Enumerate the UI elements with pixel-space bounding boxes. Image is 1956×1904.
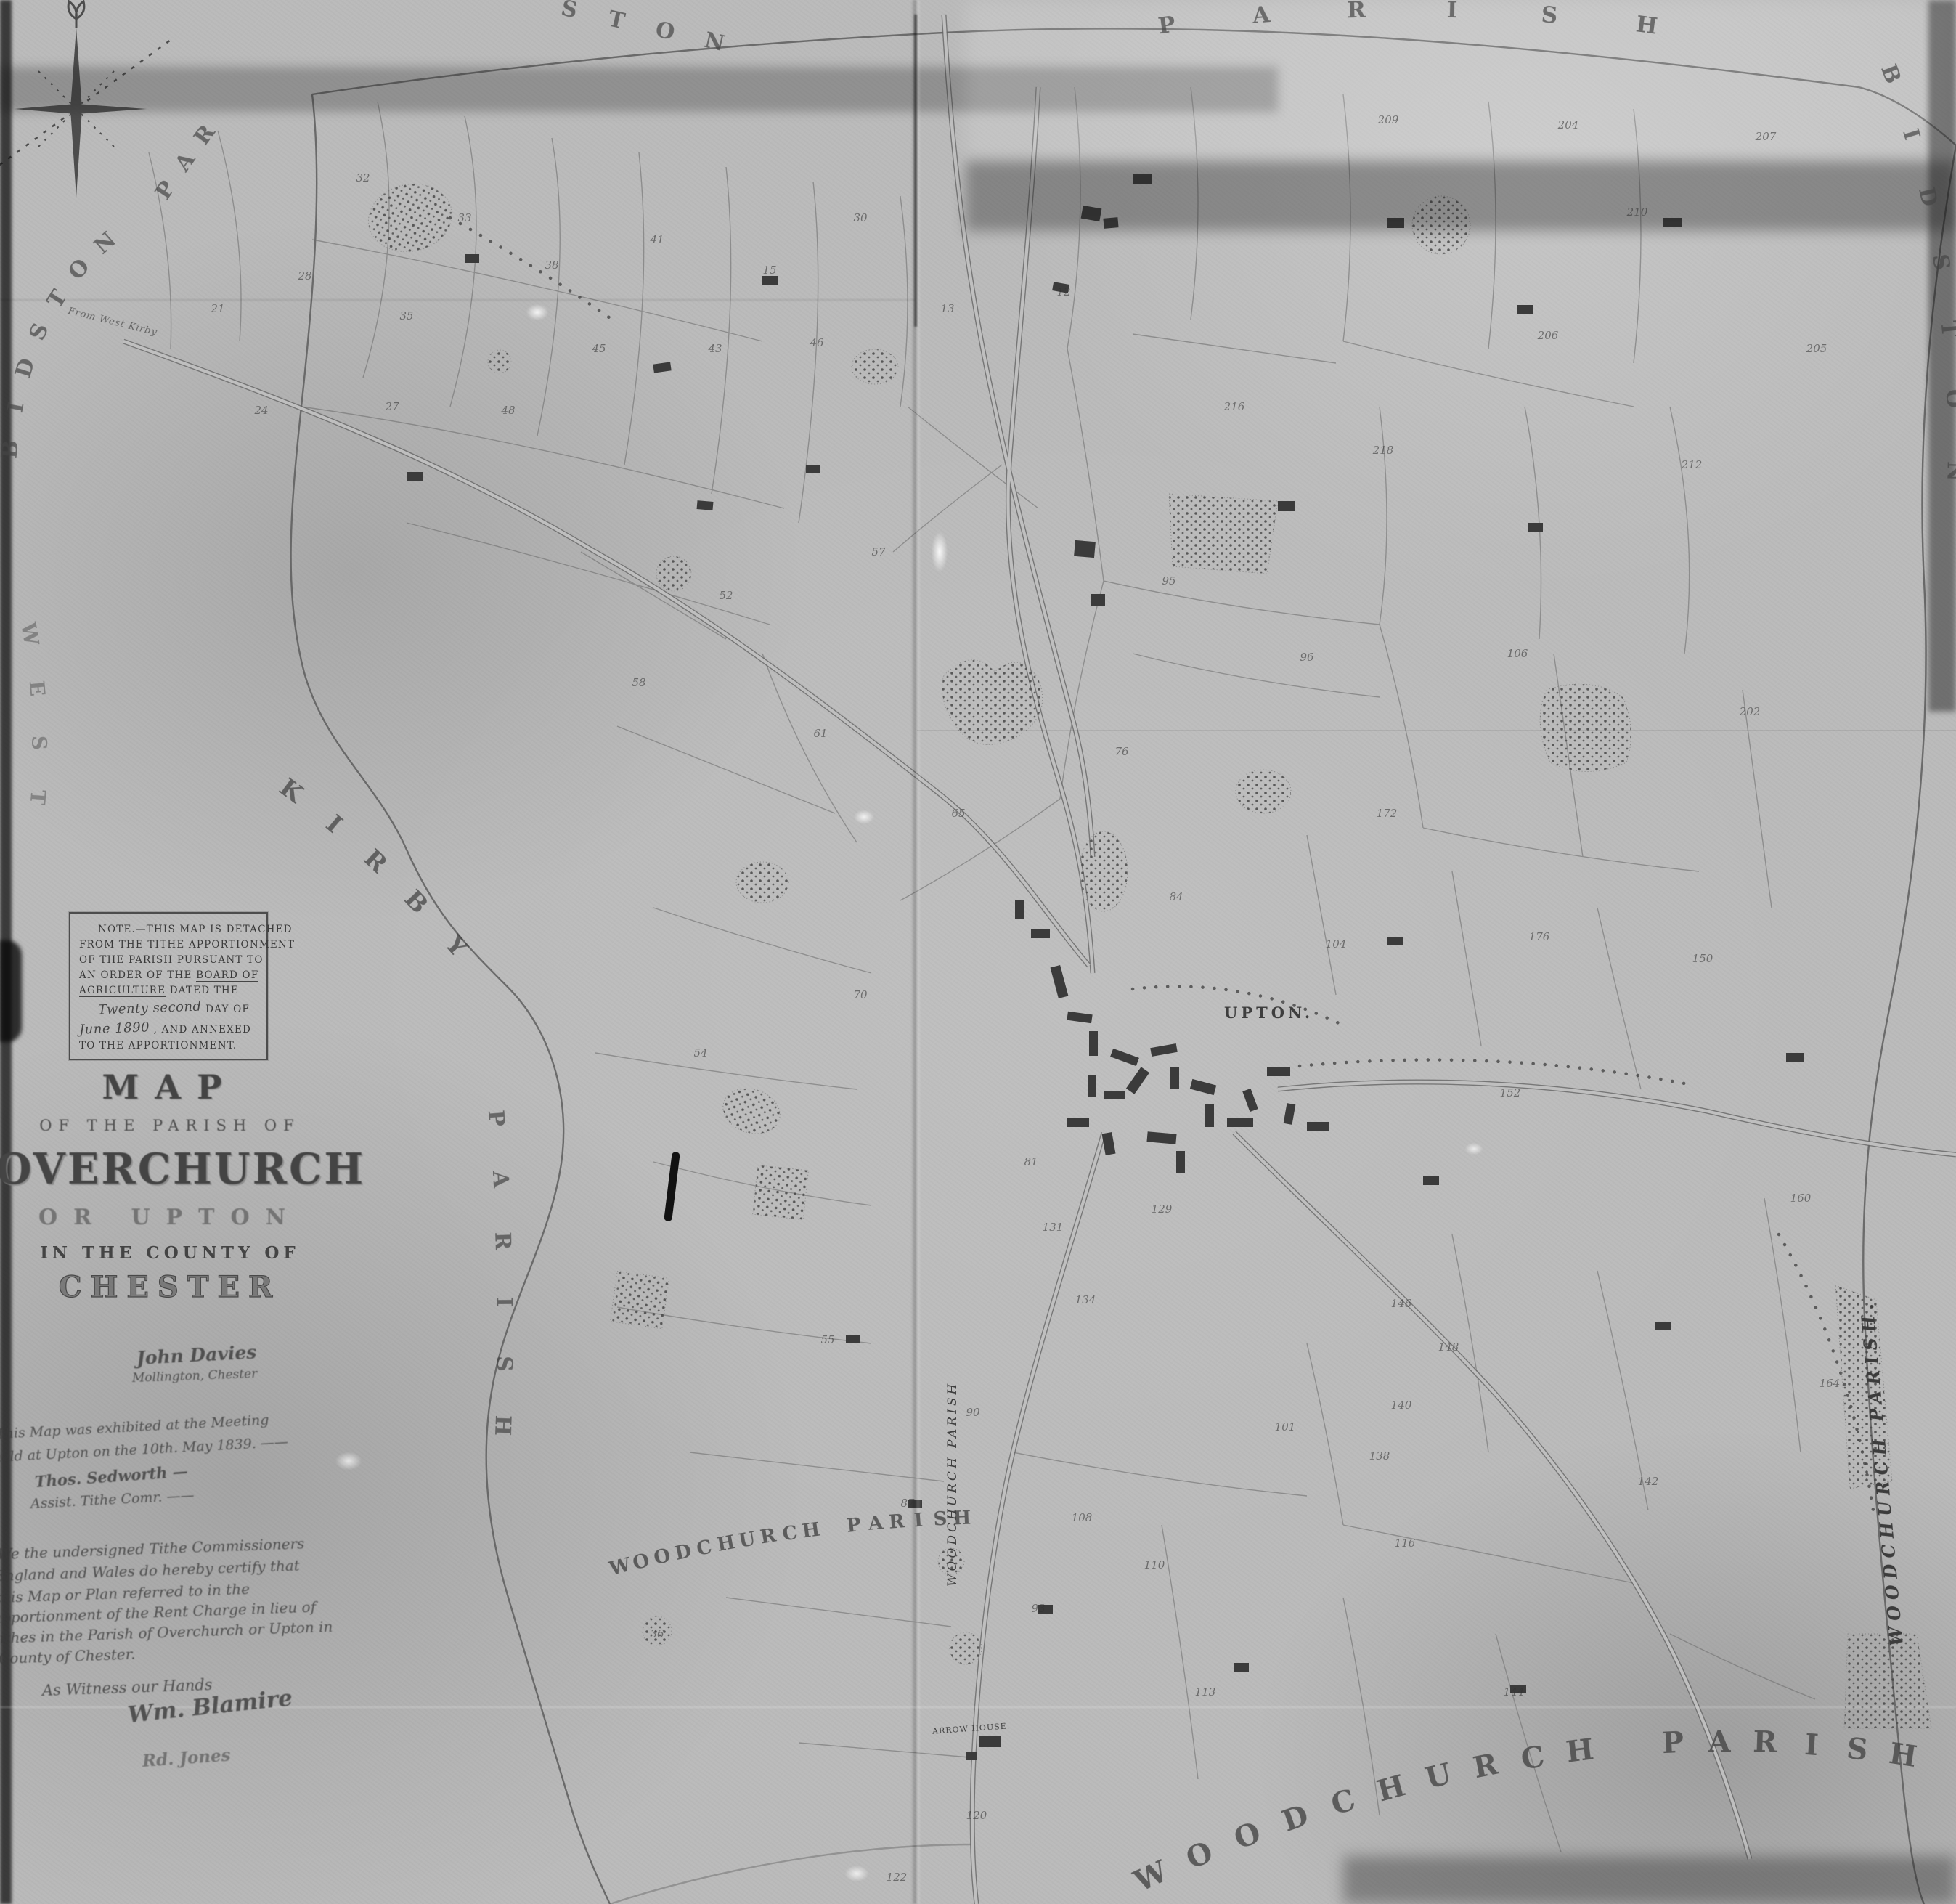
title-county-line: IN THE COUNTY OF xyxy=(0,1243,344,1263)
parish-boundary xyxy=(291,28,1956,1904)
note-line: TO THE APPORTIONMENT. xyxy=(79,1038,259,1054)
note-line: FROM THE TITHE APPORTIONMENT xyxy=(79,937,259,953)
crease-horizontal-1 xyxy=(0,299,915,301)
note-line: AGRICULTURE DATED THE xyxy=(79,983,259,998)
title-parish-name: OVERCHURCH xyxy=(0,1144,344,1195)
title-county-name: CHESTER xyxy=(0,1270,344,1304)
crease-horizontal-3 xyxy=(917,730,1956,731)
note-line: NOTE.—THIS MAP IS DETACHED xyxy=(79,922,259,937)
title-map: MAP xyxy=(0,1067,344,1107)
scan-shadow-band-top-right xyxy=(966,161,1956,231)
ink-mark xyxy=(664,1152,680,1222)
title-block: MAP OF THE PARISH OF OVERCHURCH OR UPTON… xyxy=(0,1067,344,1304)
tithe-map-scan: BIDSTONPARSTONPARISHBIDSTONWESTKIRBYPARI… xyxy=(0,0,1956,1904)
woodchurch-parish-road-label: WOODCHURCH PARISH xyxy=(945,1381,960,1587)
title-alt-name: OR UPTON xyxy=(0,1205,344,1230)
note-box: NOTE.—THIS MAP IS DETACHED FROM THE TITH… xyxy=(69,912,268,1060)
note-line: OF THE PARISH PURSUANT TO xyxy=(79,953,259,968)
note-line: AN ORDER OF THE BOARD OF xyxy=(79,968,259,983)
scan-edge-right xyxy=(1928,0,1956,712)
scan-light-patch-top-right xyxy=(966,0,1956,161)
scan-shadow-bottom-right xyxy=(1343,1856,1956,1904)
note-line-handwritten-date: June 1890 , AND ANNEXED xyxy=(79,1019,259,1039)
fold-crease-vertical-top xyxy=(914,15,917,327)
scan-edge-left-bump xyxy=(0,940,22,1042)
note-line-handwritten-date: Twenty second DAY OF xyxy=(79,998,259,1019)
roads xyxy=(123,15,1956,1904)
woodland-patches xyxy=(362,176,1931,1728)
village-label-upton: UPTON. xyxy=(1224,1004,1313,1022)
title-of-the-parish: OF THE PARISH OF xyxy=(0,1117,344,1134)
